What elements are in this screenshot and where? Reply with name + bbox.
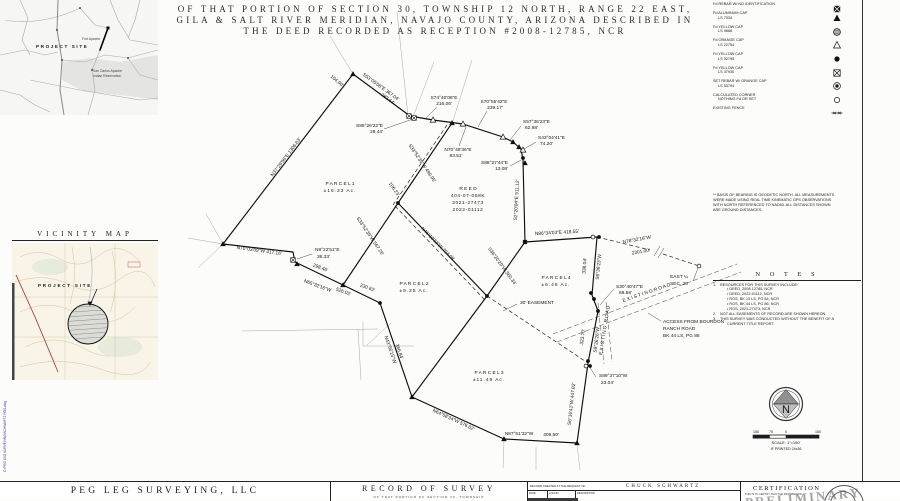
plat-label: 409.50' (543, 432, 559, 438)
vicinity-map-graphic (12, 243, 158, 380)
legend-item: Fd ORANGE CAPLS 22754 (713, 38, 863, 47)
plat-label: S89°37'10"W (599, 373, 628, 379)
plat-label: EAST ¼ (670, 274, 689, 280)
fence-line (242, 329, 378, 331)
title-block: PEG LEG SURVEYING, LLC RECORD OF SURVEY … (0, 481, 900, 500)
leader-line (524, 142, 536, 149)
note-item: CURRENT TITLE REPORT. (713, 322, 861, 327)
corner-marker (596, 309, 600, 313)
plat-label: 29.44' (370, 129, 383, 135)
legend-item: CALCULATED CORNERNOTHING Fd OR SET (713, 93, 863, 102)
request-cell: RECORD CREATED AT THE REQUEST OF: CHUCK … (527, 482, 740, 501)
plat-label: 323.70' (579, 329, 587, 345)
scale-bar-seg (770, 435, 787, 438)
fort-apache-label: Fort Apache (82, 37, 100, 41)
plat-label: ±9.25 Ac. (400, 288, 429, 294)
legend-item: EXISTING FENCE (713, 106, 863, 111)
corner-marker (378, 301, 382, 305)
plat-label: R E E D (459, 186, 477, 192)
plat-label: SEC. 30 (670, 281, 688, 287)
circle-hatched-icon (831, 26, 843, 38)
legend-item: Fd YELLOW CAPLS 32795 (713, 52, 863, 61)
notes-list: 1.RESOURCES FOR THIS SURVEY INCLUDE:• DE… (713, 283, 861, 327)
plat-label: N86°34'03"E 418.55' (535, 229, 579, 237)
legend: Fd REBAR W/ NO IDENTIFICATIONFd ALUMINUM… (713, 2, 863, 116)
plat-label: 104.00' (329, 74, 345, 89)
square-x-icon (831, 67, 843, 79)
corner-marker (521, 156, 525, 160)
plat-label: N64°58'34"W 576.02' (432, 408, 476, 433)
leader-line (426, 107, 437, 118)
corner-marker (396, 201, 400, 205)
request-label: RECORD CREATED AT THE REQUEST OF: (530, 484, 586, 488)
leader-line (297, 254, 312, 259)
record-of-survey-sheet: { "title_block": { "line1": "OF THAT POR… (0, 0, 900, 500)
title-line-2: GILA & SALT RIVER MERIDIAN, NAVAJO COUNT… (140, 15, 730, 26)
plat-label: N78°32'16"W (622, 235, 652, 246)
fence-line (452, 60, 472, 124)
plat-label: 338.04' (581, 258, 588, 274)
fence-line (358, 329, 361, 380)
boundary-line (223, 74, 598, 443)
corner-marker (584, 364, 588, 368)
basis-note-line: ARE GROUND DISTANCES. (713, 208, 865, 213)
plat-label: 106.23' (387, 181, 401, 197)
print-size-text: IF PRINTED 24x36 (771, 447, 802, 451)
plat-label: S33°52'39"W 567.26' (355, 216, 385, 257)
easement-line (487, 296, 588, 363)
plat-label: 2022-01112 (453, 207, 484, 213)
plat-label: S88°27'44"E (481, 160, 508, 166)
fence-line-icon (831, 107, 843, 119)
corner-marker (597, 235, 601, 239)
plat-label: S53°05'08"E 367.04' (361, 72, 400, 103)
boundary-line (525, 237, 597, 242)
plat-label: 83.51' (450, 153, 463, 159)
triangle-open-icon (831, 39, 843, 51)
legend-item: Fd YELLOW CAPLS 37930 (713, 66, 863, 75)
plat-label: S74°40'06"E (431, 95, 458, 101)
triangle-filled-icon (831, 12, 843, 24)
leader-line (384, 119, 413, 129)
fence-line (413, 62, 434, 117)
plat-label: N37°29'56"E 1306.63' (270, 137, 303, 178)
corner-marker (523, 240, 527, 244)
leader-line (503, 304, 517, 311)
legend-item: Fd ALUMINUM CAPLS 7334 (713, 11, 863, 20)
plat-label: N46°10'23"W 704.08' (420, 226, 456, 262)
plat-label: P A R C E L 1 (325, 181, 354, 187)
scale-bar-seg (786, 435, 819, 438)
plat-label: 62.98' (525, 125, 538, 131)
client-name: CHUCK SCHWARTZ (626, 484, 700, 489)
plat-label: 2021-27473 (452, 200, 484, 206)
fence-line (198, 244, 223, 268)
notes-title: N O T E S (713, 271, 861, 278)
plat-label: P A R C E L 2 (399, 281, 428, 287)
leader-line (600, 289, 614, 305)
document-title: RECORD OF SURVEY (331, 484, 527, 493)
plat-label: S36°20'29"W 360.34' (486, 246, 517, 286)
plat-label: S33°52'39"W 499.95' (407, 143, 437, 184)
plat-label: BK 44 LS, PG 86 (663, 333, 700, 339)
plat-label: ±6.45 Ac. (542, 282, 571, 288)
document-title-cell: RECORD OF SURVEY OF THAT PORTION OF SECT… (330, 482, 527, 501)
plat-label: S2°20'04"E 911.12' (513, 179, 521, 220)
scale-tick-75: 75 (769, 430, 773, 434)
leader-line (510, 126, 521, 140)
fence-line (503, 441, 504, 468)
corner-marker (350, 71, 356, 76)
corner-marker (591, 235, 595, 239)
plat-label: 239.17' (487, 105, 503, 111)
project-site-marker (107, 27, 110, 30)
scale-text: SCALE: 1"=150' (772, 440, 801, 445)
plat-label: S43°04'41"E (538, 135, 565, 141)
corner-marker (592, 297, 596, 301)
north-arrow-and-scale: N 150 75 0 150 SCALE: 1"=150' IF PRINTED… (735, 380, 865, 458)
corner-marker (586, 359, 590, 363)
fence-line (330, 36, 353, 74)
leader-line (648, 313, 661, 321)
plat-label: 74.20' (540, 141, 553, 147)
plat-label: N70°03'09"W 417.16' (236, 245, 282, 257)
plat-label: P A R C E L 4 (541, 275, 570, 281)
vicinity-map: VICINITY MAP PROJECT SITE (12, 230, 158, 380)
reservation-label-1: San Carlos Apache (93, 69, 122, 73)
state-map-graphic (0, 0, 158, 115)
plat-label: 216.06' (436, 101, 452, 107)
easement-line (663, 254, 699, 266)
plat-label: S88°26'22"E (356, 123, 383, 129)
plat-label: ±11.49 Ac. (473, 377, 505, 383)
scale-tick-0: 0 (785, 430, 787, 434)
plat-label: 36.33' (317, 254, 330, 260)
leader-line (459, 127, 466, 146)
corner-marker (697, 264, 701, 268)
fence-line (188, 238, 223, 244)
firm-name: PEG LEG SURVEYING, LLC (0, 482, 330, 501)
sheet-divider-line (862, 0, 863, 481)
plat-label: S30°40'47"E (616, 284, 643, 290)
fence-line (206, 214, 223, 244)
leader-line (658, 248, 664, 258)
plat-label: 230.62' (359, 283, 376, 294)
circle-filled-icon (831, 53, 843, 65)
plat-label: N70°48'36"E (444, 147, 471, 153)
plat-label: N8°22'51"E (315, 247, 340, 253)
leader-line (510, 160, 521, 166)
plat-label: P A R C E L 3 (474, 370, 503, 376)
legend-item: SET REBAR W/ ORANGE CAPLS 53794 (713, 79, 863, 88)
plat-label: ±16.33 Ac. (324, 188, 357, 194)
plat-label: 30' EASEMENT (520, 300, 554, 306)
project-site-label: PROJECT SITE (36, 44, 88, 49)
rev-col-date: DATE (528, 491, 548, 498)
circle-target-icon (831, 80, 843, 92)
reservation-label-2: Indian Reservation (93, 74, 121, 78)
sheet-title: OF THAT PORTION OF SECTION 30, TOWNSHIP … (140, 4, 730, 36)
rev-col-description: DESCRIPTION (576, 491, 740, 498)
legend-item: Fd REBAR W/ NO IDENTIFICATION (713, 2, 863, 7)
plat-label: 2301.00' (631, 247, 650, 256)
leader-line (478, 111, 487, 127)
rev-col-logjn: LOG/JN (548, 491, 576, 498)
corner-marker (588, 364, 592, 368)
plat-label: 68.58' (619, 290, 632, 296)
scale-bar-seg (753, 435, 770, 438)
state-location-map: PROJECT SITE Fort Apache San Carlos Apac… (0, 0, 158, 115)
plat-label: 23.04' (601, 380, 614, 386)
fence-line (577, 445, 580, 470)
corner-marker (589, 291, 593, 295)
document-subtitle: OF THAT PORTION OF SECTION 30, TOWNSHIP (331, 495, 527, 499)
plat-label: S6°36'23"W (595, 253, 603, 279)
certification-cell: CERTIFICATION THIS IS TO CERTIFY THAT TH… (740, 482, 900, 501)
vicinity-map-title: VICINITY MAP (12, 230, 158, 241)
plat-label: 13.08' (495, 166, 508, 172)
leader-line (654, 246, 660, 256)
corner-marker (485, 294, 489, 298)
plat-label: 404-07-058K (451, 193, 486, 199)
scale-tick-150l: 150 (753, 430, 759, 434)
scale-tick-150r: 150 (815, 430, 821, 434)
plat-label: S57°36'23"E (523, 119, 550, 125)
plat-label: S70°55'42"E (481, 99, 508, 105)
notes-rule (713, 280, 861, 281)
plat-label: N65°32'16"W (303, 278, 332, 294)
title-line-3: THE DEED RECORDED AS RECEPTION #2008-127… (140, 26, 730, 37)
plat-label: N87°51'32"W (505, 431, 534, 437)
legend-item: Fd YELLOW CAPLS 9868 (713, 25, 863, 34)
plat-label: S6°16'41"W 447.82' (567, 382, 577, 425)
plat-label: RANCH ROAD (663, 326, 696, 332)
notes-panel: N O T E S 1.RESOURCES FOR THIS SURVEY IN… (713, 271, 861, 327)
title-line-1: OF THAT PORTION OF SECTION 30, TOWNSHIP … (140, 4, 730, 15)
vicinity-project-site-label: PROJECT SITE (38, 283, 92, 288)
basis-of-bearing-note: ** BASIS OF BEARING IS GEODETIC NORTH. A… (713, 193, 865, 213)
circle-open-icon (831, 94, 843, 106)
north-arrow-top-triangle (774, 390, 799, 405)
north-letter: N (782, 404, 790, 416)
plot-file-path-text: C:\PEG LEG SURVEYING\SCHWARTZ ROS.dwg (3, 401, 7, 472)
